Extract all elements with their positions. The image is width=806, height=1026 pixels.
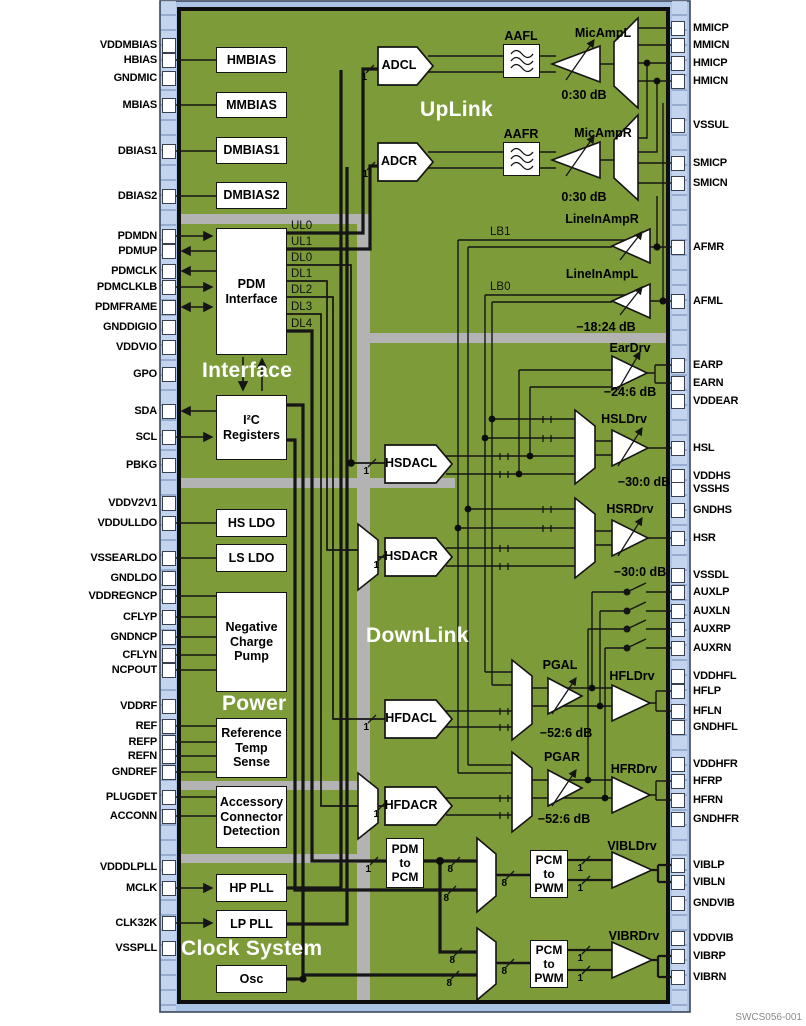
section-clock-system: Clock System: [181, 937, 322, 961]
block-label: LS LDO: [229, 551, 275, 566]
pin-gndhfl: GNDHFL: [671, 719, 738, 735]
pin-dbias2: DBIAS2: [0, 188, 176, 204]
pdm2pcm-in-width: 1: [359, 864, 371, 875]
pin-label: SMICP: [693, 157, 727, 169]
block-label: DMBIAS1: [223, 143, 279, 158]
pin-hfrp: HFRP: [671, 773, 722, 789]
pin-label: VDDHFR: [693, 758, 738, 770]
block-label: I²C: [243, 413, 260, 428]
pin-label: NCPOUT: [112, 664, 157, 676]
pin-hmicn: HMICN: [671, 73, 728, 89]
pin-label: AUXLN: [693, 605, 730, 617]
ul1-bus-label: UL1: [291, 236, 312, 248]
pin-gndref: GNDREF: [0, 764, 176, 780]
pin-label: VDDRF: [120, 700, 157, 712]
eardrv-gain-label: −24:6 dB: [588, 385, 672, 399]
pin-pad: [162, 790, 176, 805]
pin-pad: [671, 669, 685, 684]
adcl-width: 1: [355, 72, 367, 83]
pin-pad: [671, 74, 685, 89]
pin-label: PDMCLKLB: [97, 281, 157, 293]
pin-label: GNDHFL: [693, 721, 738, 733]
pin-label: MMICN: [693, 39, 729, 51]
pin-sda: SDA: [0, 403, 176, 419]
i2c-registers-block: I²CRegisters: [216, 395, 287, 460]
pin-label: CFLYP: [123, 611, 157, 623]
hsdacl-label: HSDACL: [384, 456, 438, 470]
pin-label: PDMFRAME: [95, 301, 157, 313]
pin-pad: [162, 589, 176, 604]
pin-label: VIBLN: [693, 876, 725, 888]
pin-pad: [162, 719, 176, 734]
pin-pdmframe: PDMFRAME: [0, 299, 176, 315]
pin-pad: [671, 394, 685, 409]
pin-pad: [671, 896, 685, 911]
pin-label: HSR: [693, 532, 716, 544]
pin-pad: [671, 720, 685, 735]
pin-vddvib: VDDVIB: [671, 930, 733, 946]
pin-label: MMICP: [693, 22, 729, 34]
section-downlink: DownLink: [366, 624, 469, 648]
pin-pdmup: PDMUP: [0, 243, 176, 259]
block-label: LP PLL: [230, 917, 273, 932]
pin-pad: [162, 941, 176, 956]
pin-pad: [162, 300, 176, 315]
pin-label: EARP: [693, 359, 723, 371]
block-label: Registers: [223, 428, 280, 443]
block-label: PCM: [536, 943, 563, 957]
lineinampl-label: LineInAmpL: [556, 267, 648, 281]
pin-pad: [162, 648, 176, 663]
pin-label: REFN: [128, 750, 157, 762]
pdm-interface-block: PDMInterface: [216, 228, 287, 355]
ls-ldo-block: LS LDO: [216, 544, 287, 572]
pin-label: HMICP: [693, 57, 727, 69]
pin-vddregncp: VDDREGNCP: [0, 588, 176, 604]
pwm2-outp-width: 1: [571, 953, 583, 964]
section-power: Power: [222, 692, 287, 716]
pin-label: DBIAS2: [118, 190, 157, 202]
block-label: to: [543, 957, 554, 971]
pin-label: VIBLP: [693, 859, 724, 871]
dl1-bus-label: DL1: [291, 268, 312, 280]
pin-pad: [671, 858, 685, 873]
pin-pdmclk: PDMCLK: [0, 263, 176, 279]
pin-pad: [162, 551, 176, 566]
pin-smicn: SMICN: [671, 175, 727, 191]
pin-viblp: VIBLP: [671, 857, 724, 873]
pdm2pcm-out-width: 8: [441, 864, 453, 875]
lb1-bus-label: LB1: [490, 226, 510, 238]
pin-label: PDMDN: [118, 230, 157, 242]
pin-label: GNDVIB: [693, 897, 735, 909]
pin-label: REFP: [128, 736, 157, 748]
pdm-to-pcm-block: PDMtoPCM: [386, 838, 424, 888]
pin-label: SDA: [134, 405, 157, 417]
block-label: PCM: [392, 870, 419, 884]
pin-label: VIBRN: [693, 971, 726, 983]
block-label: Detection: [223, 824, 280, 839]
pin-refn: REFN: [0, 748, 176, 764]
pin-label: VDDULLDO: [97, 517, 157, 529]
document-code: SWCS056-001: [698, 1012, 802, 1023]
pin-label: MCLK: [126, 882, 157, 894]
block-label: to: [399, 856, 410, 870]
pin-label: GNDHFR: [693, 813, 739, 825]
vibmux1-in2-width: 8: [437, 893, 449, 904]
pin-pad: [162, 430, 176, 445]
pin-afml: AFML: [671, 293, 723, 309]
pin-pad: [671, 704, 685, 719]
block-label: Connector: [220, 810, 283, 825]
pin-pad: [671, 604, 685, 619]
pin-dbias1: DBIAS1: [0, 143, 176, 159]
pin-vssdl: VSSDL: [671, 567, 729, 583]
pin-auxlp: AUXLP: [671, 584, 729, 600]
pin-label: VSSUL: [693, 119, 729, 131]
lineinampr-label: LineInAmpR: [556, 212, 648, 226]
pin-label: DBIAS1: [118, 145, 157, 157]
pin-pad: [671, 294, 685, 309]
micampl-gain-label: 0:30 dB: [544, 88, 624, 102]
hp-pll-block: HP PLL: [216, 874, 287, 902]
block-label: Reference: [221, 726, 281, 741]
dl4-bus-label: DL4: [291, 318, 312, 330]
pin-gnddigio: GNDDIGIO: [0, 319, 176, 335]
hsdacl-width: 1: [357, 466, 369, 477]
dmbias2-block: DMBIAS2: [216, 182, 287, 209]
hsrdrv-label: HSRDrv: [590, 502, 670, 516]
pin-pad: [162, 280, 176, 295]
pin-label: PLUGDET: [106, 791, 157, 803]
pin-pad: [162, 229, 176, 244]
reference-temp-sense-block: ReferenceTempSense: [216, 718, 287, 778]
pin-earn: EARN: [671, 375, 723, 391]
pin-vibrn: VIBRN: [671, 969, 726, 985]
section-interface: Interface: [202, 359, 292, 383]
block-label: Temp: [235, 741, 267, 756]
vibrdrv-label: VIBRDrv: [592, 929, 676, 943]
pin-label: GNDDIGIO: [103, 321, 157, 333]
pin-label: VDDEAR: [693, 395, 738, 407]
accessory-connector-detection-block: AccessoryConnectorDetection: [216, 786, 287, 848]
hfldrv-label: HFLDrv: [592, 669, 672, 683]
pgal-label: PGAL: [524, 658, 596, 672]
pgar-label: PGAR: [526, 750, 598, 764]
pin-label: ACCONN: [110, 810, 157, 822]
hfdacr-width: 1: [367, 809, 379, 820]
vibmux2-out-width: 8: [495, 966, 507, 977]
vibmux2-in1-width: 8: [443, 955, 455, 966]
pin-vssearldo: VSSEARLDO: [0, 550, 176, 566]
dl3-bus-label: DL3: [291, 301, 312, 313]
pin-vdddlpll: VDDDLPLL: [0, 859, 176, 875]
pin-vsshs: VSSHS: [671, 481, 729, 497]
pin-pad: [671, 118, 685, 133]
pin-vddhfr: VDDHFR: [671, 756, 738, 772]
filter-wave-icon: [509, 48, 535, 74]
pin-pad: [671, 684, 685, 699]
pin-pad: [671, 641, 685, 656]
pin-pad: [162, 320, 176, 335]
pin-pad: [671, 376, 685, 391]
block-label: DMBIAS2: [223, 188, 279, 203]
pin-pad: [671, 585, 685, 600]
block-label: Accessory: [220, 795, 283, 810]
pin-vddrf: VDDRF: [0, 698, 176, 714]
hsdacr-width: 1: [367, 560, 379, 571]
pin-pad: [162, 881, 176, 896]
pin-pad: [162, 38, 176, 53]
pin-label: SMICN: [693, 177, 727, 189]
pin-label: HFLN: [693, 705, 722, 717]
pin-label: GPO: [133, 368, 157, 380]
pin-pad: [162, 496, 176, 511]
block-label: to: [543, 867, 554, 881]
block-label: HMBIAS: [227, 53, 276, 68]
pin-pbkg: PBKG: [0, 457, 176, 473]
pin-pad: [671, 482, 685, 497]
pwm2-outn-width: 1: [571, 973, 583, 984]
hsrdrv-gain-label: −30:0 dB: [598, 565, 682, 579]
hsdacr-label: HSDACR: [384, 549, 438, 563]
pin-label: CLK32K: [115, 917, 157, 929]
pin-hmicp: HMICP: [671, 55, 727, 71]
pin-pad: [162, 144, 176, 159]
pin-acconn: ACCONN: [0, 808, 176, 824]
block-label: Osc: [240, 972, 264, 987]
pin-pad: [671, 568, 685, 583]
pin-pad: [162, 809, 176, 824]
adcl-label: ADCL: [378, 58, 420, 72]
dl0-bus-label: DL0: [291, 252, 312, 264]
pin-auxrp: AUXRP: [671, 621, 731, 637]
pin-pad: [671, 38, 685, 53]
block-label: PDM: [392, 842, 419, 856]
block-label: HP PLL: [229, 881, 273, 896]
block-label: Sense: [233, 755, 270, 770]
pin-label: CFLYN: [122, 649, 157, 661]
pin-pad: [671, 622, 685, 637]
hs-ldo-block: HS LDO: [216, 509, 287, 537]
pin-afmr: AFMR: [671, 239, 724, 255]
pin-gndmic: GNDMIC: [0, 70, 176, 86]
pin-scl: SCL: [0, 429, 176, 445]
pin-pad: [162, 367, 176, 382]
hmbias-block: HMBIAS: [216, 47, 287, 73]
pin-label: GNDNCP: [111, 631, 157, 643]
block-label: Charge: [230, 635, 273, 650]
pin-pad: [162, 98, 176, 113]
vibmux2-in2-width: 8: [440, 978, 452, 989]
aafr-filter-block: [503, 142, 540, 176]
hfdacl-label: HFDACL: [384, 711, 438, 725]
pin-pad: [671, 949, 685, 964]
pin-pdmclklb: PDMCLKLB: [0, 279, 176, 295]
pgal-gain-label: −52:6 dB: [524, 726, 608, 740]
dl2-bus-label: DL2: [291, 284, 312, 296]
pin-pad: [162, 458, 176, 473]
pin-gndvib: GNDVIB: [671, 895, 735, 911]
pin-label: VDDVIO: [116, 341, 157, 353]
pin-pad: [671, 970, 685, 985]
pin-pad: [671, 156, 685, 171]
pin-hfrn: HFRN: [671, 792, 723, 808]
pin-pad: [671, 774, 685, 789]
pin-pad: [671, 793, 685, 808]
vibldrv-label: VIBLDrv: [590, 839, 674, 853]
block-label: Interface: [225, 292, 277, 307]
pin-vibln: VIBLN: [671, 874, 725, 890]
pin-label: VSSEARLDO: [90, 552, 157, 564]
block-label: Negative: [225, 620, 277, 635]
pin-hbias: HBIAS: [0, 52, 176, 68]
pin-pad: [671, 757, 685, 772]
pin-hflp: HFLP: [671, 683, 721, 699]
pin-label: VSSDL: [693, 569, 729, 581]
pin-label: HFLP: [693, 685, 721, 697]
pin-pad: [162, 340, 176, 355]
pin-gndhs: GNDHS: [671, 502, 732, 518]
pin-gndncp: GNDNCP: [0, 629, 176, 645]
pin-vddvio: VDDVIO: [0, 339, 176, 355]
pin-label: AFML: [693, 295, 723, 307]
eardrv-label: EarDrv: [590, 341, 670, 355]
dmbias1-block: DMBIAS1: [216, 137, 287, 164]
pin-label: PBKG: [126, 459, 157, 471]
pcm-to-pwm-right-block: PCMtoPWM: [530, 940, 568, 988]
pin-pad: [162, 860, 176, 875]
pin-label: HFRN: [693, 794, 723, 806]
pcm-to-pwm-left-block: PCMtoPWM: [530, 850, 568, 898]
block-label: PWM: [534, 971, 563, 985]
vibmux1-out-width: 8: [495, 878, 507, 889]
pin-pad: [671, 21, 685, 36]
micampr-gain-label: 0:30 dB: [544, 190, 624, 204]
pin-label: GNDMIC: [114, 72, 157, 84]
pin-label: MBIAS: [123, 99, 157, 111]
mmbias-block: MMBIAS: [216, 92, 287, 118]
pin-label: AUXRP: [693, 623, 731, 635]
block-diagram: VDDMBIAS HBIAS GNDMIC MBIAS DBIAS1 DBIAS…: [0, 0, 806, 1026]
pin-mbias: MBIAS: [0, 97, 176, 113]
pin-pad: [162, 264, 176, 279]
pin-vddhfl: VDDHFL: [671, 668, 736, 684]
pin-pdmdn: PDMDN: [0, 228, 176, 244]
hfdacl-width: 1: [357, 722, 369, 733]
pin-label: EARN: [693, 377, 723, 389]
pin-label: HMICN: [693, 75, 728, 87]
pin-label: AFMR: [693, 241, 724, 253]
pin-pad: [162, 53, 176, 68]
pin-pad: [671, 503, 685, 518]
pin-label: VDDREGNCP: [89, 590, 158, 602]
pin-label: VDDHFL: [693, 670, 736, 682]
pin-label: GNDHS: [693, 504, 732, 516]
pin-pad: [671, 931, 685, 946]
pin-label: VSSPLL: [115, 942, 157, 954]
pin-ncpout: NCPOUT: [0, 662, 176, 678]
hsldrv-label: HSLDrv: [584, 412, 664, 426]
negative-charge-pump-block: NegativeChargePump: [216, 592, 287, 692]
pin-pad: [671, 176, 685, 191]
hfrdrv-label: HFRDrv: [594, 762, 674, 776]
pin-label: VDDV2V1: [108, 497, 157, 509]
pin-smicp: SMICP: [671, 155, 727, 171]
pin-label: VSSHS: [693, 483, 729, 495]
pin-label: VDDVIB: [693, 932, 733, 944]
pin-gndhfr: GNDHFR: [671, 811, 739, 827]
pin-gpo: GPO: [0, 366, 176, 382]
section-uplink: UpLink: [420, 98, 493, 122]
pin-label: REF: [136, 720, 157, 732]
aafl-filter-block: [503, 44, 540, 78]
filter-wave-icon: [509, 146, 535, 172]
pin-label: GNDREF: [112, 766, 157, 778]
pin-clk32k: CLK32K: [0, 915, 176, 931]
pin-pad: [671, 441, 685, 456]
pin-vddulldo: VDDULLDO: [0, 515, 176, 531]
pin-label: HBIAS: [124, 54, 157, 66]
adcr-label: ADCR: [378, 154, 420, 168]
block-label: PWM: [534, 881, 563, 895]
micampr-label: MicAmpR: [558, 126, 648, 140]
pin-pad: [162, 244, 176, 259]
pin-cflyn: CFLYN: [0, 647, 176, 663]
pin-gndldo: GNDLDO: [0, 570, 176, 586]
pin-label: VDDDLPLL: [100, 861, 157, 873]
pin-pad: [671, 358, 685, 373]
pin-pad: [162, 516, 176, 531]
pin-pad: [162, 699, 176, 714]
pin-label: PDMUP: [118, 245, 157, 257]
pin-pad: [162, 610, 176, 625]
linein-gain-label: −18:24 dB: [560, 320, 652, 334]
pin-mclk: MCLK: [0, 880, 176, 896]
block-label: MMBIAS: [226, 98, 277, 113]
pin-label: HSL: [693, 442, 714, 454]
block-label: PDM: [238, 277, 266, 292]
pin-auxrn: AUXRN: [671, 640, 731, 656]
pin-label: VDDMBIAS: [100, 39, 157, 51]
lb0-bus-label: LB0: [490, 281, 510, 293]
pwm1-outp-width: 1: [571, 863, 583, 874]
pin-pad: [671, 812, 685, 827]
pin-pad: [162, 916, 176, 931]
pin-label: GNDLDO: [111, 572, 157, 584]
pin-label: VIBRP: [693, 950, 726, 962]
pin-pad: [162, 404, 176, 419]
block-label: PCM: [536, 853, 563, 867]
block-label: Pump: [234, 649, 269, 664]
pin-pad: [162, 630, 176, 645]
hfdacr-label: HFDACR: [384, 798, 438, 812]
pin-auxln: AUXLN: [671, 603, 730, 619]
ul0-bus-label: UL0: [291, 220, 312, 232]
pgar-gain-label: −52:6 dB: [522, 812, 606, 826]
lp-pll-block: LP PLL: [216, 910, 287, 938]
pin-hfln: HFLN: [671, 703, 722, 719]
adcr-width: 1: [356, 169, 368, 180]
pin-hsr: HSR: [671, 530, 716, 546]
pin-pad: [162, 765, 176, 780]
pin-mmicp: MMICP: [671, 20, 729, 36]
pin-pad: [162, 571, 176, 586]
pin-ref: REF: [0, 718, 176, 734]
pin-vsspll: VSSPLL: [0, 940, 176, 956]
aafr-label: AAFR: [496, 127, 546, 141]
pwm1-outn-width: 1: [571, 883, 583, 894]
